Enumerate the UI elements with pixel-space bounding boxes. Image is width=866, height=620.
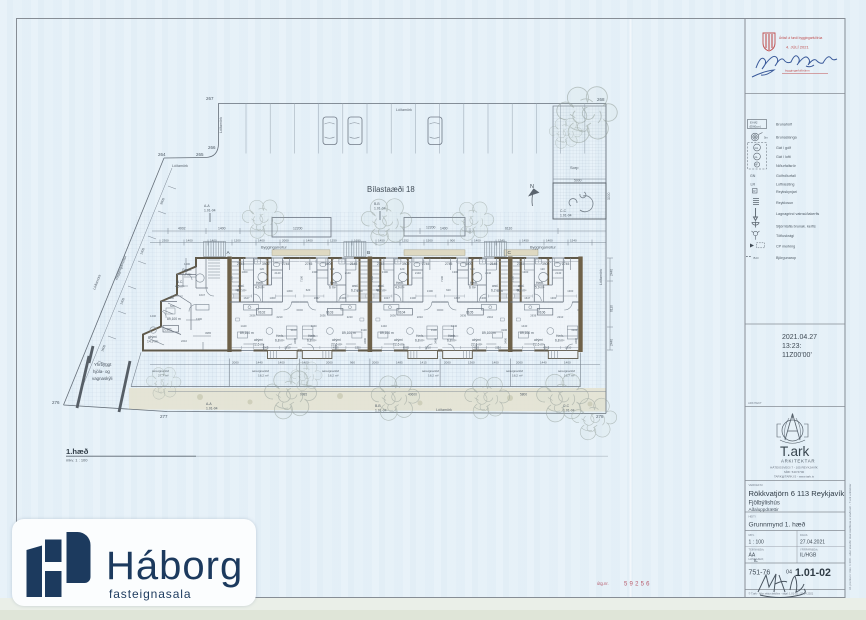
svg-text:6,8 m²: 6,8 m²	[415, 339, 425, 343]
svg-text:1400: 1400	[546, 239, 553, 243]
svg-text:Lóðamörk: Lóðamörk	[396, 107, 412, 112]
svg-text:Rökkvatjörn 6 113 Reykjavík: Rökkvatjörn 6 113 Reykjavík	[749, 489, 845, 498]
svg-text:22,6 m²: 22,6 m²	[393, 343, 405, 347]
svg-text:and.: and.	[518, 284, 525, 288]
svg-text:alrými: alrými	[332, 338, 341, 342]
svg-text:Gát / gólf: Gát / gólf	[776, 146, 792, 150]
svg-text:2440: 2440	[610, 339, 614, 346]
svg-text:Herb.: Herb.	[330, 281, 338, 285]
svg-text:Reykskynjari: Reykskynjari	[776, 190, 797, 194]
svg-text:séreignarlóð: séreignarlóð	[422, 368, 439, 373]
svg-text:Lóðamörk: Lóðamörk	[436, 407, 452, 412]
svg-text:2000: 2000	[232, 361, 239, 365]
svg-text:1.01-04: 1.01-04	[204, 209, 216, 213]
svg-text:89,100 m: 89,100 m	[380, 331, 394, 335]
svg-text:alrými: alrými	[148, 335, 157, 339]
svg-text:4002: 4002	[178, 227, 186, 231]
svg-text:3000: 3000	[607, 192, 611, 200]
svg-text:267: 267	[206, 96, 214, 101]
svg-text:12200: 12200	[426, 226, 436, 230]
svg-text:Björgunarop: Björgunarop	[776, 256, 796, 260]
svg-text:T.ark: T.ark	[780, 444, 810, 459]
svg-text:1400: 1400	[440, 227, 448, 231]
svg-text:276: 276	[52, 400, 60, 405]
svg-text:2745: 2745	[282, 262, 290, 266]
svg-text:2,7 m²: 2,7 m²	[182, 273, 192, 277]
svg-text:Herb.: Herb.	[256, 281, 264, 285]
svg-text:6,2 m²: 6,2 m²	[351, 289, 361, 293]
svg-text:6 m²: 6 m²	[469, 286, 476, 290]
svg-text:89,100 m: 89,100 m	[342, 331, 356, 335]
svg-text:1415: 1415	[420, 361, 427, 365]
svg-text:6,2 m²: 6,2 m²	[237, 289, 247, 293]
svg-text:89,100 m: 89,100 m	[520, 331, 534, 335]
svg-text:Herb.: Herb.	[308, 334, 316, 338]
svg-text:6,8 m²: 6,8 m²	[275, 339, 285, 343]
svg-text:SÍMI: 540 5700: SÍMI: 540 5700	[784, 470, 805, 474]
svg-text:18,2 m²: 18,2 m²	[258, 374, 269, 378]
svg-text:4,5 m²: 4,5 m²	[175, 285, 185, 289]
svg-text:HÁTEIGSVEGI 7 - 105 REYKJAVÍK: HÁTEIGSVEGI 7 - 105 REYKJAVÍK	[770, 466, 818, 470]
svg-text:and.: and.	[352, 284, 359, 288]
svg-text:LR: LR	[751, 183, 756, 187]
svg-text:Lagnagrind vatnsúðakerfis: Lagnagrind vatnsúðakerfis	[776, 211, 819, 216]
svg-text:1250: 1250	[330, 239, 337, 243]
svg-text:YFIRFARI&Eth;: YFIRFARI&Eth;	[800, 548, 818, 552]
svg-text:ARKITEKT: ARKITEKT	[748, 401, 762, 405]
svg-text:4,9 m²: 4,9 m²	[395, 286, 405, 290]
svg-text:1440: 1440	[540, 361, 547, 365]
svg-text:266: 266	[208, 145, 216, 150]
svg-text:2145: 2145	[517, 262, 525, 266]
svg-text:Reyklosun: Reyklosun	[776, 201, 793, 205]
svg-text:89,100 m: 89,100 m	[482, 331, 496, 335]
svg-text:0102: 0102	[258, 311, 266, 315]
svg-text:12200: 12200	[293, 227, 303, 231]
svg-text:3900: 3900	[262, 262, 270, 266]
svg-text:4. JÚLÍ 2021: 4. JÚLÍ 2021	[786, 45, 809, 50]
svg-text:Töfluskrági: Töfluskrági	[776, 234, 794, 238]
svg-text:4,9 m²: 4,9 m²	[255, 286, 265, 290]
svg-text:2000: 2000	[516, 361, 523, 365]
svg-text:0105: 0105	[466, 311, 474, 315]
svg-text:MKV.: MKV.	[749, 533, 755, 537]
svg-text:C-C: C-C	[560, 209, 567, 213]
svg-text:0101: 0101	[165, 328, 173, 332]
svg-text:TEIKNA&Eth;: TEIKNA&Eth;	[749, 548, 765, 552]
svg-text:59256: 59256	[624, 582, 652, 588]
svg-text:3900: 3900	[542, 262, 550, 266]
svg-text:Gát / lofti: Gát / lofti	[776, 155, 791, 159]
svg-text:3800: 3800	[159, 197, 165, 205]
svg-text:14,9 m²: 14,9 m²	[147, 340, 159, 344]
svg-text:alrými: alrými	[254, 338, 263, 342]
svg-text:CP merking: CP merking	[776, 245, 795, 249]
svg-text:1400: 1400	[564, 361, 571, 365]
svg-text:960: 960	[350, 361, 355, 365]
svg-text:1400: 1400	[306, 239, 313, 243]
svg-text:2030: 2030	[168, 296, 174, 300]
svg-text:Byggingarreitur: Byggingarreitur	[530, 246, 556, 250]
svg-text:1647: 1647	[199, 293, 205, 297]
svg-text:Herb.: Herb.	[448, 334, 456, 338]
svg-text:22,6 m²: 22,6 m²	[331, 343, 343, 347]
svg-text:13:23:: 13:23:	[782, 343, 802, 350]
svg-text:Brunaslanga: Brunaslanga	[776, 136, 798, 140]
svg-text:and.: and.	[378, 284, 385, 288]
svg-text:NF: NF	[755, 164, 759, 167]
svg-text:and.: and.	[238, 284, 245, 288]
svg-text:8110: 8110	[610, 305, 614, 312]
svg-text:alrými: alrými	[534, 338, 543, 342]
svg-text:2300: 2300	[162, 239, 169, 243]
svg-text:Aðaluppdrættir: Aðaluppdrættir	[749, 506, 780, 512]
svg-text:18,2 m²: 18,2 m²	[328, 374, 339, 378]
svg-text:1400: 1400	[278, 361, 285, 365]
svg-text:1450: 1450	[522, 239, 529, 243]
svg-text:04: 04	[786, 570, 792, 576]
svg-text:© T.ark - Allur réttur áskil: © T.ark - Allur réttur áskilinn - skjal:…	[749, 592, 814, 596]
svg-text:1540: 1540	[570, 239, 577, 243]
svg-text:byggingarfulltrúinn: byggingarfulltrúinn	[785, 69, 810, 73]
svg-text:Sorp: Sorp	[570, 165, 579, 170]
svg-text:22,6 m²: 22,6 m²	[471, 343, 483, 347]
svg-text:GL: GL	[755, 156, 759, 159]
svg-text:Gólfniðurfall: Gólfniðurfall	[776, 173, 796, 178]
svg-text:2145: 2145	[490, 262, 498, 266]
svg-text:Lóðamörk: Lóðamörk	[218, 117, 223, 133]
svg-text:2745: 2745	[422, 262, 430, 266]
svg-text:1300: 1300	[196, 317, 202, 321]
svg-text:mkv. 1 : 100: mkv. 1 : 100	[66, 458, 88, 463]
svg-text:1252: 1252	[402, 239, 409, 243]
svg-text:11Z00'00': 11Z00'00'	[782, 352, 812, 359]
svg-text:2000: 2000	[444, 361, 451, 365]
svg-text:89,100 m: 89,100 m	[240, 331, 254, 335]
svg-text:1400: 1400	[492, 361, 499, 365]
svg-text:264: 264	[158, 152, 166, 157]
svg-text:A-A: A-A	[204, 204, 210, 208]
svg-text:6,2 m²: 6,2 m²	[377, 289, 387, 293]
svg-text:2000: 2000	[326, 361, 333, 365]
svg-text:2210: 2210	[181, 339, 187, 343]
svg-text:Byggingarreitur: Byggingarreitur	[261, 246, 287, 250]
svg-text:DAGS.: DAGS.	[800, 533, 808, 537]
svg-text:0103: 0103	[326, 311, 334, 315]
svg-text:alrými: alrými	[472, 338, 481, 342]
svg-text:5,9 m²: 5,9 m²	[535, 286, 545, 290]
svg-text:útg.nr.: útg.nr.	[597, 581, 609, 586]
svg-text:1440: 1440	[256, 361, 263, 365]
svg-text:alrými: alrými	[394, 338, 403, 342]
svg-text:TARK@TARK.IS - www.tark.is: TARK@TARK.IS - www.tark.is	[774, 475, 815, 479]
svg-text:2745: 2745	[305, 262, 313, 266]
svg-text:B.D: B.D	[754, 256, 760, 260]
svg-text:6,2 m²: 6,2 m²	[517, 289, 527, 293]
svg-text:2440: 2440	[610, 269, 614, 276]
svg-text:2021.04.27: 2021.04.27	[782, 334, 817, 341]
svg-text:Yfirbyggt: Yfirbyggt	[94, 362, 112, 367]
svg-text:Stjórntafla brunak. kerfis: Stjórntafla brunak. kerfis	[776, 225, 816, 229]
svg-text:Herb.: Herb.	[470, 281, 478, 285]
svg-text:6,8 m²: 6,8 m²	[307, 339, 317, 343]
svg-text:Loftræsting: Loftræsting	[776, 183, 794, 187]
svg-text:6 m²: 6 m²	[329, 286, 336, 290]
svg-text:1200: 1200	[234, 239, 241, 243]
svg-text:1400: 1400	[186, 239, 193, 243]
svg-text:séreignarlóð: séreignarlóð	[506, 368, 523, 373]
svg-text:vagnaskýli: vagnaskýli	[92, 376, 113, 381]
svg-text:Herb.: Herb.	[536, 281, 544, 285]
svg-text:séreignarlóð: séreignarlóð	[322, 368, 339, 373]
svg-text:18,2 m²: 18,2 m²	[428, 374, 439, 378]
svg-text:18,2 m²: 18,2 m²	[512, 374, 523, 378]
svg-text:VERKEFNI: VERKEFNI	[749, 483, 763, 487]
svg-text:1485: 1485	[396, 361, 403, 365]
svg-text:1400: 1400	[474, 239, 481, 243]
svg-text:(EI60cm): (EI60cm)	[750, 125, 761, 129]
svg-text:1400: 1400	[218, 227, 226, 231]
svg-text:1.01-04: 1.01-04	[206, 407, 218, 411]
svg-text:Grunnmynd 1. hæð: Grunnmynd 1. hæð	[749, 521, 806, 529]
svg-text:HEITI: HEITI	[749, 515, 756, 519]
svg-text:Herb.: Herb.	[416, 334, 424, 338]
svg-text:Herb.: Herb.	[276, 334, 284, 338]
svg-text:6,8 m²: 6,8 m²	[555, 339, 565, 343]
svg-text:1400: 1400	[184, 262, 190, 266]
svg-text:3900: 3900	[402, 262, 410, 266]
svg-text:Geym.: Geym.	[182, 268, 192, 272]
svg-text:Herb.: Herb.	[556, 334, 564, 338]
svg-text:Lóðamörk: Lóðamörk	[598, 269, 603, 285]
svg-text:5m: 5m	[764, 136, 769, 140]
svg-text:4965: 4965	[205, 331, 211, 335]
svg-text:900: 900	[450, 239, 455, 243]
svg-text:22,6 m²: 22,6 m²	[253, 343, 265, 347]
svg-text:1.01-04: 1.01-04	[560, 214, 572, 218]
svg-text:1360: 1360	[468, 361, 475, 365]
svg-text:Áritað á fundi byggingarfulltr: Áritað á fundi byggingarfulltrúa	[779, 35, 822, 40]
svg-text:séreignarlóð: séreignarlóð	[558, 368, 575, 373]
svg-text:0104: 0104	[398, 311, 406, 315]
svg-text:GG: GG	[755, 147, 759, 150]
svg-text:A1 prentun í mkv. 1:100 - alla: A1 prentun í mkv. 1:100 - allar stærðir …	[847, 484, 852, 590]
svg-text:2000: 2000	[372, 361, 379, 365]
svg-text:277: 277	[160, 414, 168, 419]
svg-text:IL: IL	[754, 558, 758, 563]
svg-text:1.hæð: 1.hæð	[66, 447, 89, 456]
svg-text:6,2 m²: 6,2 m²	[491, 289, 501, 293]
svg-text:2745: 2745	[445, 262, 453, 266]
svg-text:27.04.2021: 27.04.2021	[800, 540, 825, 546]
svg-text:751-76: 751-76	[749, 570, 771, 577]
svg-text:Niðurfallsrör: Niðurfallsrör	[776, 163, 797, 168]
svg-text:A-A: A-A	[206, 402, 212, 406]
svg-text:2000: 2000	[282, 239, 289, 243]
svg-text:hjóla- og: hjóla- og	[93, 369, 110, 374]
svg-text:Lóðamörk: Lóðamörk	[172, 163, 188, 168]
svg-text:Bílastaæði 18: Bílastaæði 18	[367, 185, 415, 194]
svg-text:Lóðamörk: Lóðamörk	[91, 273, 102, 290]
svg-text:2745: 2745	[562, 262, 570, 266]
svg-text:265: 265	[196, 152, 204, 157]
svg-text:1440: 1440	[150, 314, 156, 318]
svg-text:3000: 3000	[325, 262, 333, 266]
svg-text:89,100 m: 89,100 m	[167, 317, 181, 321]
svg-text:1690: 1690	[354, 239, 361, 243]
svg-text:2145: 2145	[350, 262, 358, 266]
svg-text:IL/HGB: IL/HGB	[800, 553, 817, 559]
svg-text:1.01-02: 1.01-02	[795, 567, 831, 579]
svg-text:2145: 2145	[237, 262, 245, 266]
svg-text:6,8 m²: 6,8 m²	[447, 339, 457, 343]
svg-text:3000: 3000	[465, 262, 473, 266]
svg-text:5800: 5800	[520, 393, 527, 397]
svg-text:1400: 1400	[258, 239, 265, 243]
svg-text:ARKITEKTAR: ARKITEKTAR	[781, 459, 815, 464]
svg-text:0106: 0106	[538, 311, 546, 315]
svg-text:R: R	[753, 189, 756, 193]
svg-text:Brunahólf: Brunahólf	[776, 123, 793, 127]
svg-text:GN: GN	[750, 174, 756, 178]
svg-text:Fjölbýlishús: Fjölbýlishús	[749, 501, 780, 507]
svg-text:22,6 m²: 22,6 m²	[533, 343, 545, 347]
svg-text:B: B	[367, 250, 370, 256]
svg-text:and.: and.	[492, 284, 499, 288]
svg-text:1 : 100: 1 : 100	[749, 540, 765, 546]
svg-text:2145: 2145	[377, 262, 385, 266]
svg-text:Herb.: Herb.	[396, 281, 404, 285]
svg-text:B-B: B-B	[375, 404, 381, 408]
svg-text:1500: 1500	[426, 239, 433, 243]
svg-text:C: C	[508, 250, 512, 256]
svg-text:W.C.: W.C.	[176, 280, 183, 284]
svg-text:séreignarlóð: séreignarlóð	[252, 368, 269, 373]
svg-text:6110: 6110	[505, 227, 512, 231]
